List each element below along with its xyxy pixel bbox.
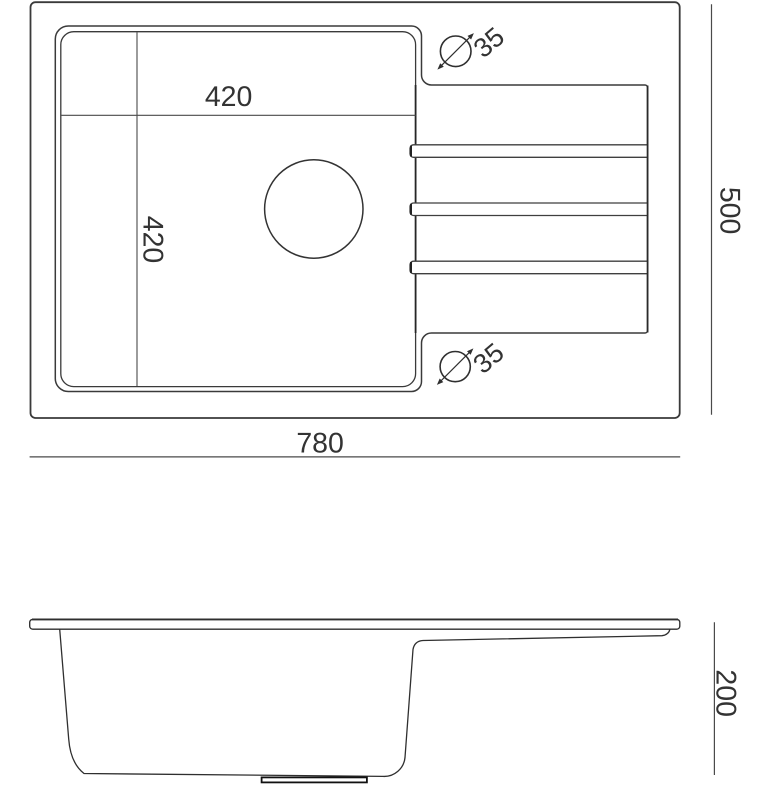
svg-text:200: 200 bbox=[709, 669, 741, 717]
svg-text:500: 500 bbox=[714, 187, 746, 235]
svg-text:420: 420 bbox=[137, 216, 169, 264]
svg-text:35: 35 bbox=[467, 337, 509, 379]
svg-text:780: 780 bbox=[296, 428, 344, 460]
svg-text:35: 35 bbox=[468, 21, 510, 63]
svg-text:420: 420 bbox=[205, 81, 253, 113]
